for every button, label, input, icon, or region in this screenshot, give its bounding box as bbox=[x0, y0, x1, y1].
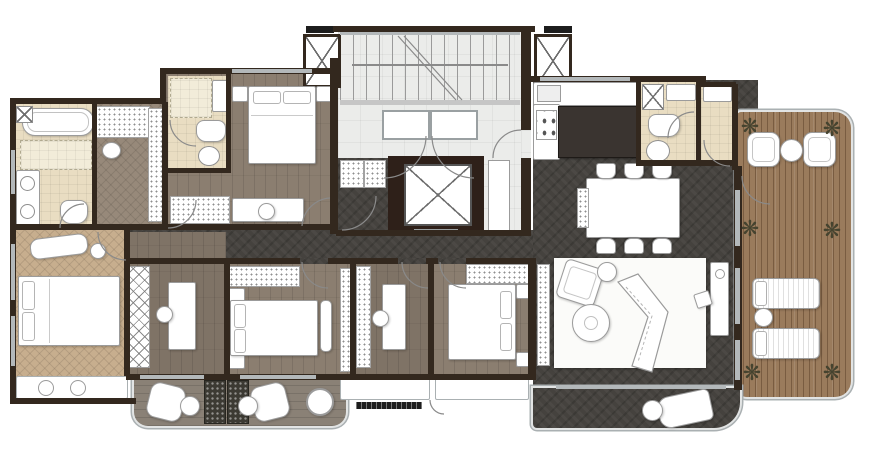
wardrobe-lattice bbox=[128, 266, 150, 368]
hall-closet bbox=[364, 160, 386, 188]
pillow bbox=[283, 91, 311, 104]
pillow bbox=[500, 291, 512, 319]
lobby-door-right bbox=[430, 110, 478, 140]
ac-pad bbox=[306, 26, 334, 33]
plant-icon: ❋ bbox=[738, 116, 762, 140]
window-seat-cushion bbox=[70, 380, 86, 396]
bed-double bbox=[230, 300, 318, 356]
console-knob bbox=[715, 269, 725, 279]
pillow bbox=[22, 312, 35, 341]
planter-box bbox=[204, 380, 226, 424]
toilet bbox=[648, 114, 680, 137]
bench bbox=[320, 300, 332, 352]
stair-rail bbox=[352, 64, 508, 66]
ottoman bbox=[597, 262, 617, 282]
round-sink bbox=[646, 140, 670, 162]
pillow bbox=[22, 281, 35, 310]
round-pot bbox=[306, 388, 334, 416]
kitchen-sink bbox=[537, 85, 561, 102]
blanket-fold bbox=[251, 115, 313, 116]
door-opening bbox=[300, 258, 328, 264]
window bbox=[735, 340, 740, 380]
dressing-stool bbox=[102, 142, 121, 159]
wall-lobby-left bbox=[330, 58, 338, 234]
plant-icon: ❋ bbox=[740, 362, 764, 386]
window-band-lobby bbox=[340, 32, 520, 35]
desk-chair bbox=[258, 203, 275, 220]
hall-closet bbox=[340, 160, 364, 188]
window bbox=[11, 244, 15, 300]
balcony-side-table bbox=[180, 396, 200, 416]
sink-bowl bbox=[20, 176, 35, 191]
shower-tray bbox=[20, 140, 92, 170]
pillow bbox=[234, 304, 246, 328]
sink-bowl bbox=[20, 204, 35, 219]
door-opening bbox=[438, 258, 466, 264]
wall-bedroom-divider bbox=[428, 260, 434, 376]
entry-door-opening bbox=[521, 130, 531, 158]
lounger-headrest bbox=[755, 331, 767, 356]
washer bbox=[642, 84, 664, 110]
bathtub-inner bbox=[27, 112, 89, 132]
balcony-side-table bbox=[642, 400, 663, 421]
pillow bbox=[234, 329, 246, 353]
dining-chair bbox=[596, 238, 616, 254]
nightstand bbox=[232, 86, 248, 102]
dining-chair bbox=[596, 163, 616, 179]
wall-powder-bottom bbox=[636, 160, 736, 166]
window bbox=[232, 69, 312, 73]
wall-dressing-right bbox=[162, 102, 168, 226]
plant-icon: ❋ bbox=[820, 362, 844, 386]
wall-ensuite-right bbox=[226, 74, 231, 172]
pillow bbox=[253, 91, 281, 104]
balcony-side-table bbox=[238, 396, 258, 416]
service-duct bbox=[488, 160, 510, 232]
media-console bbox=[710, 262, 729, 336]
shower-tray bbox=[170, 78, 212, 118]
stair-flight bbox=[340, 34, 520, 100]
wall-lobby-right-lower bbox=[521, 158, 531, 236]
wall-bath-dressing bbox=[92, 102, 97, 226]
wall-bedroom-divider bbox=[350, 260, 356, 376]
sun-lounger bbox=[752, 328, 820, 359]
door-opening bbox=[398, 258, 426, 264]
sun-lounger bbox=[752, 278, 820, 309]
bath-shelf bbox=[666, 84, 696, 101]
wall-lobby-bottom bbox=[336, 230, 530, 236]
dining-chair bbox=[652, 238, 672, 254]
wall-corridor-top bbox=[14, 224, 336, 230]
wall-left-bottom bbox=[10, 398, 136, 404]
window bbox=[540, 77, 630, 81]
window bbox=[140, 375, 204, 379]
window-seat-cushion bbox=[38, 380, 54, 396]
wall-top-left-block bbox=[10, 98, 166, 104]
window bbox=[240, 375, 316, 379]
terrace-side-table bbox=[754, 308, 773, 327]
lobby-door-left bbox=[382, 110, 430, 140]
floor-plan: ❋ ❋ ❋ ❋ ❋ ❋ bbox=[0, 0, 878, 462]
dining-chair bbox=[624, 238, 644, 254]
wall-corridor-bottom bbox=[126, 258, 536, 264]
utility-box bbox=[16, 106, 33, 123]
window bbox=[735, 190, 740, 246]
wardrobe-hatched bbox=[96, 106, 150, 138]
nightstand bbox=[228, 354, 245, 369]
bed-king bbox=[18, 276, 120, 346]
bed-double bbox=[448, 284, 516, 360]
terrace-armchair-seat bbox=[752, 137, 775, 162]
pillow bbox=[500, 323, 512, 351]
lounger-headrest bbox=[755, 281, 767, 306]
dining-table bbox=[586, 178, 680, 238]
sliding-door bbox=[556, 385, 726, 389]
stair-landing bbox=[340, 100, 520, 105]
toilet bbox=[196, 120, 226, 142]
cooktop bbox=[536, 110, 557, 140]
wall-kitchen-powder bbox=[636, 80, 641, 162]
round-sink bbox=[198, 146, 220, 166]
toilet bbox=[60, 200, 88, 224]
window bbox=[735, 268, 740, 324]
desk-chair bbox=[156, 306, 173, 323]
elevator-cab bbox=[404, 164, 472, 226]
ac-unit bbox=[356, 402, 422, 409]
plant-icon: ❋ bbox=[820, 220, 844, 244]
dining-bench bbox=[577, 188, 589, 228]
window bbox=[11, 150, 15, 194]
wall-master-study bbox=[124, 228, 130, 376]
terrace-round-table bbox=[780, 139, 803, 162]
side-table bbox=[90, 243, 106, 259]
kitchen-island bbox=[558, 106, 638, 158]
wall-foyer-right bbox=[732, 84, 738, 170]
window-bay-right bbox=[435, 377, 529, 400]
closet-hatched bbox=[228, 266, 300, 287]
wall-powder-foyer bbox=[696, 82, 701, 162]
wardrobe-hatched bbox=[170, 196, 230, 224]
wall-foyer-top bbox=[701, 82, 736, 87]
wall-study-bedroom bbox=[224, 260, 230, 376]
armchair-seat bbox=[562, 265, 597, 300]
plant-icon: ❋ bbox=[820, 118, 844, 142]
wardrobe-strip bbox=[356, 266, 371, 368]
window-bay-left bbox=[340, 377, 430, 400]
bed-double bbox=[248, 86, 316, 164]
wall-ensuite-bottom bbox=[166, 168, 231, 173]
ac-pad bbox=[544, 26, 572, 33]
shoe-cabinet bbox=[703, 86, 732, 102]
coffee-table-round bbox=[572, 304, 610, 342]
wall-bedroom-living bbox=[528, 264, 536, 376]
closet-hatched bbox=[466, 264, 530, 284]
window bbox=[11, 316, 15, 366]
sideboard bbox=[537, 264, 550, 366]
blanket-fold bbox=[49, 279, 50, 343]
desk-chair bbox=[372, 310, 389, 327]
coffee-table-inner bbox=[584, 316, 598, 330]
